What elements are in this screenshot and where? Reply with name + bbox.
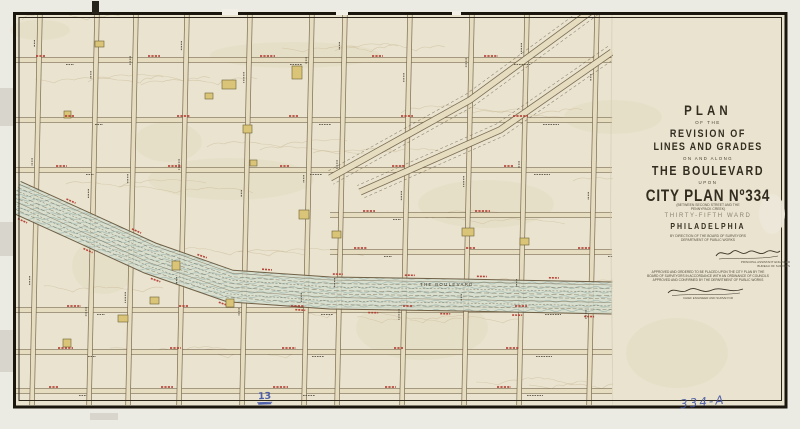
title-on-and-along: ON AND ALONG [616,157,800,161]
title-revision: REVISION OF [633,129,784,140]
title-of-the: OF THE [616,121,800,126]
signature-2-caption: CHIEF ENGINEER AND SURVEYOR [616,297,800,300]
title-lines-grades: LINES AND GRADES [633,142,784,153]
title-the-boulevard: THE BOULEVARD [633,164,784,177]
title-upon: UPON [616,181,800,185]
signature-1 [714,245,782,261]
title-plan: PLAN [633,103,784,117]
pencil-page-number: 13 [257,391,273,404]
title-ward: THIRTY-FIFTH WARD [616,213,800,219]
title-block: PLAN OF THE REVISION OF LINES AND GRADES… [616,0,800,429]
title-paren-line-2: PENNYPACK CREEK) [616,208,800,211]
title-city: PHILADELPHIA [633,222,784,231]
title-dept-line-2: DEPARTMENT OF PUBLIC WORKS [616,239,800,242]
signature-1-caption-2: BUREAU OF SURVEYS [670,265,790,268]
boulevard-label: THE BOULEVARD [420,282,474,287]
approval-line-3: APPROVED AND CONFIRMED BY THE DEPARTMENT… [616,279,800,282]
